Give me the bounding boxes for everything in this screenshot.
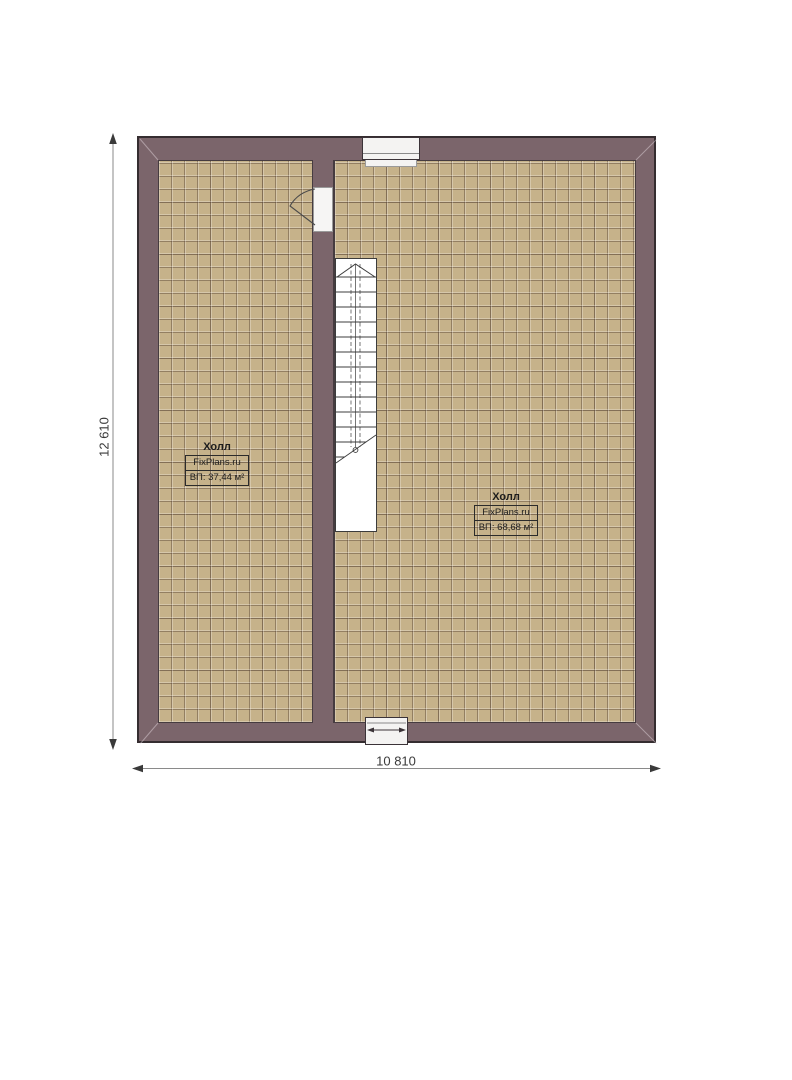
room-area-text: ВП: 37,44 м² xyxy=(186,470,249,485)
arrow-right-icon xyxy=(650,765,661,773)
room-label-right: Холл FixPlans.ru ВП: 68,68 м² xyxy=(469,491,543,536)
window-bottom xyxy=(365,717,408,745)
dimension-label-vertical: 12 610 xyxy=(97,417,112,457)
room-name: Холл xyxy=(203,441,231,453)
floor-plan: Холл FixPlans.ru ВП: 37,44 м² Холл FixPl… xyxy=(137,136,656,743)
room-area-text: ВП: 68,68 м² xyxy=(475,520,538,535)
watermark-text: FixPlans.ru xyxy=(475,506,538,520)
room-info-box: FixPlans.ru ВП: 68,68 м² xyxy=(474,505,539,536)
room-info-box: FixPlans.ru ВП: 37,44 м² xyxy=(185,455,250,486)
window-opening-arrow xyxy=(366,718,407,744)
arrow-up-icon xyxy=(109,133,117,144)
arrow-down-icon xyxy=(109,739,117,750)
interior-wall xyxy=(312,160,334,723)
room-right-floor xyxy=(334,160,636,723)
dimension-label-horizontal: 10 810 xyxy=(376,754,416,769)
window-top xyxy=(362,137,420,160)
staircase xyxy=(335,258,377,532)
window-pane-line xyxy=(363,153,419,154)
floor-plan-page: 12 610 10 810 xyxy=(0,0,792,1080)
staircase-drawing xyxy=(335,258,377,532)
door-leaf xyxy=(313,187,333,232)
watermark-text: FixPlans.ru xyxy=(186,456,249,470)
window-sill xyxy=(365,160,417,167)
room-name: Холл xyxy=(492,491,520,503)
room-label-left: Холл FixPlans.ru ВП: 37,44 м² xyxy=(177,441,257,486)
arrow-left-icon xyxy=(132,765,143,773)
